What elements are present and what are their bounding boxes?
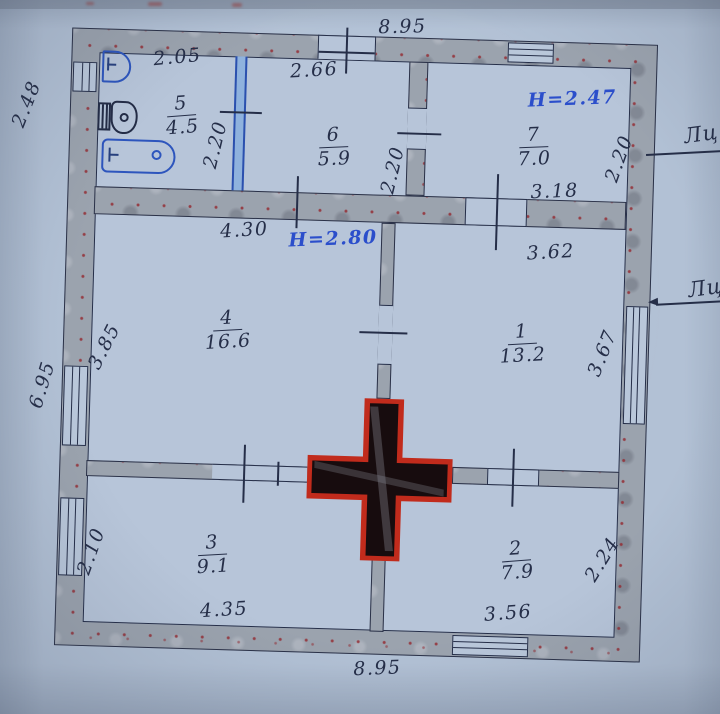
window-sash-line [453, 641, 527, 645]
dim-room4-width: 4.30 [220, 220, 269, 242]
dim-room1-width: 3.62 [526, 242, 575, 264]
dim-left-upper: 2.48 [9, 78, 45, 130]
edge-arrow-line [656, 300, 720, 306]
edge-label-underline [646, 150, 720, 156]
door-opening-room4-room1 [377, 305, 393, 365]
window-room5-left [72, 61, 97, 92]
height-label-attic: H=2.47 [527, 88, 617, 111]
dim-bottom-width: 8.95 [353, 658, 402, 679]
window-sash-line [70, 367, 74, 445]
room-number: 7 [519, 125, 549, 148]
room-number: 6 [318, 125, 348, 148]
photo-smudge [148, 2, 162, 6]
photo-smudge [86, 2, 94, 5]
room-label-3: 3 9.1 [195, 532, 231, 577]
photo-edge-shadow [0, 0, 720, 9]
edge-label-lower: Лц [686, 274, 720, 303]
dim-left-side: 6.95 [27, 359, 59, 411]
tap-mark [109, 154, 119, 156]
toilet-drain [120, 113, 129, 122]
room-label-5: 5 4.5 [164, 93, 200, 138]
room-label-6: 6 5.9 [316, 125, 351, 169]
room-area: 7.9 [500, 560, 535, 583]
room-area: 5.9 [317, 147, 351, 169]
edge-label-upper: Лц [682, 120, 719, 149]
window-sash-line [630, 307, 635, 423]
dim-room5-width: 2.05 [153, 46, 203, 69]
dim-top-width: 8.95 [378, 17, 427, 37]
dim-room6-width: 2.66 [289, 60, 338, 82]
toilet-icon [97, 102, 111, 130]
tap-mark [107, 63, 116, 65]
dim-room7-width: 3.18 [530, 181, 579, 202]
arrow-left-icon [648, 298, 658, 307]
toilet-tank-line [105, 104, 107, 128]
room-label-7: 7 7.0 [516, 125, 551, 169]
dim-room2-width: 3.56 [483, 602, 533, 625]
stove-cross-icon [305, 397, 455, 563]
window-room1-right [623, 306, 648, 425]
door-opening-room6-room7 [407, 107, 427, 150]
window-sash-line [66, 499, 70, 575]
room-number: 1 [506, 322, 536, 346]
window-sash-line [453, 647, 527, 651]
door-opening-room4-room3 [212, 464, 307, 483]
window-room2-bottom [452, 635, 529, 657]
room-number: 5 [166, 93, 197, 117]
room-area: 16.6 [204, 329, 251, 353]
room-area: 7.0 [517, 147, 551, 169]
room-number: 2 [501, 538, 532, 562]
room-label-1: 1 13.2 [498, 321, 547, 367]
toilet-tank-line [101, 104, 103, 128]
room-label-4: 4 16.6 [203, 307, 252, 353]
window-sash-line [77, 367, 81, 445]
window-sash-line [88, 63, 90, 91]
window-sash-line [509, 54, 553, 57]
bathtub-drain [151, 150, 161, 160]
room-area: 9.1 [196, 554, 230, 577]
window-sash-line [81, 63, 83, 91]
room-number: 3 [197, 533, 227, 557]
floor-plan: 8.95 2.05 2.66 H=2.47 2.20 2.20 2.20 3.1… [54, 27, 658, 662]
window-room4-left [62, 365, 88, 446]
height-label-main: H=2.80 [288, 228, 378, 251]
room-label-2: 2 7.9 [498, 538, 534, 583]
photo-smudge [232, 3, 242, 7]
window-sash-line [509, 48, 553, 51]
dim-room3-width: 4.35 [199, 599, 248, 621]
window-sash-line [636, 307, 641, 423]
room-number: 4 [212, 308, 242, 332]
room-area: 13.2 [499, 343, 546, 367]
room-area: 4.5 [165, 115, 200, 138]
bathtub-icon [101, 138, 176, 174]
window-room7-top [507, 42, 554, 63]
